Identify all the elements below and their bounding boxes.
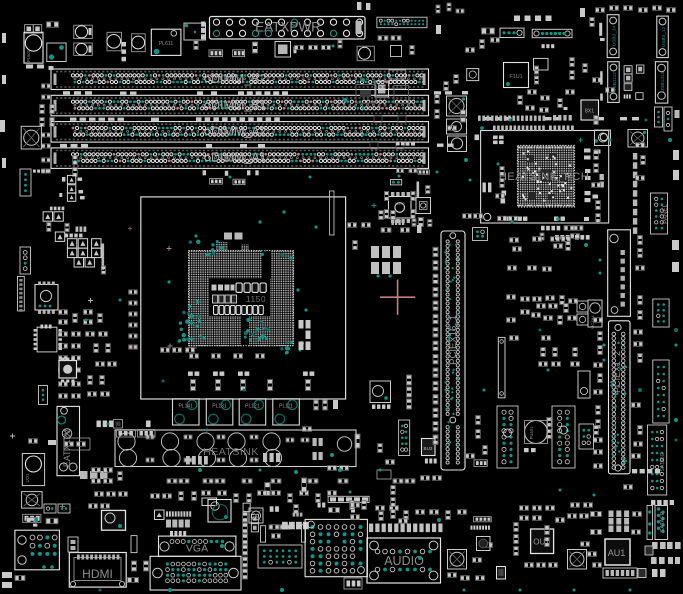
- svg-text:PCIEX1_2: PCIEX1_2: [612, 351, 622, 393]
- svg-text:DIMM_A1: DIMM_A1: [211, 151, 267, 165]
- svg-text:PANEL: PANEL: [662, 204, 669, 224]
- svg-text:PL601: PL601: [26, 49, 31, 62]
- svg-text:EATXPWR: EATXPWR: [255, 20, 321, 35]
- svg-text:HDMI: HDMI: [82, 567, 113, 581]
- svg-text:DIMM_A2: DIMM_A2: [211, 124, 267, 138]
- svg-text:1150: 1150: [246, 294, 266, 304]
- svg-text:DIMM_B1: DIMM_B1: [211, 98, 267, 112]
- svg-text:8X1: 8X1: [585, 109, 594, 115]
- svg-text:USB3_34: USB3_34: [612, 25, 618, 46]
- svg-text:VGA: VGA: [186, 543, 208, 555]
- svg-text:AU1: AU1: [608, 548, 626, 558]
- svg-text:SATA6G: SATA6G: [660, 452, 666, 471]
- svg-text:UC7H4: UC7H4: [590, 315, 595, 329]
- svg-text:UO1: UO1: [25, 473, 30, 483]
- svg-text:USB1112: USB1112: [612, 72, 618, 92]
- svg-text:PCIEX16_1: PCIEX16_1: [448, 315, 459, 365]
- svg-text:BU3: BU3: [424, 446, 433, 451]
- svg-text:USB1314: USB1314: [660, 71, 666, 92]
- svg-text:DIMM_B2: DIMM_B2: [211, 72, 267, 86]
- svg-text:AUDIO: AUDIO: [384, 554, 424, 568]
- svg-text:PL121: PL121: [245, 404, 260, 410]
- svg-text:PU401: PU401: [529, 426, 534, 439]
- svg-text:U502: U502: [395, 201, 405, 206]
- svg-text:PL131: PL131: [212, 404, 227, 410]
- svg-text:PL611: PL611: [159, 41, 174, 47]
- svg-text:HEATSINK: HEATSINK: [203, 446, 259, 458]
- svg-text:EATX12V: EATX12V: [62, 429, 72, 467]
- svg-text:SATAFP: SATAFP: [660, 512, 666, 533]
- svg-text:HEATSINK_PCH: HEATSINK_PCH: [499, 171, 590, 183]
- svg-text:PL111: PL111: [279, 404, 293, 410]
- svg-text:F1U1: F1U1: [509, 74, 522, 80]
- svg-text:USB3_12: USB3_12: [661, 26, 667, 47]
- svg-text:PL141: PL141: [178, 404, 193, 410]
